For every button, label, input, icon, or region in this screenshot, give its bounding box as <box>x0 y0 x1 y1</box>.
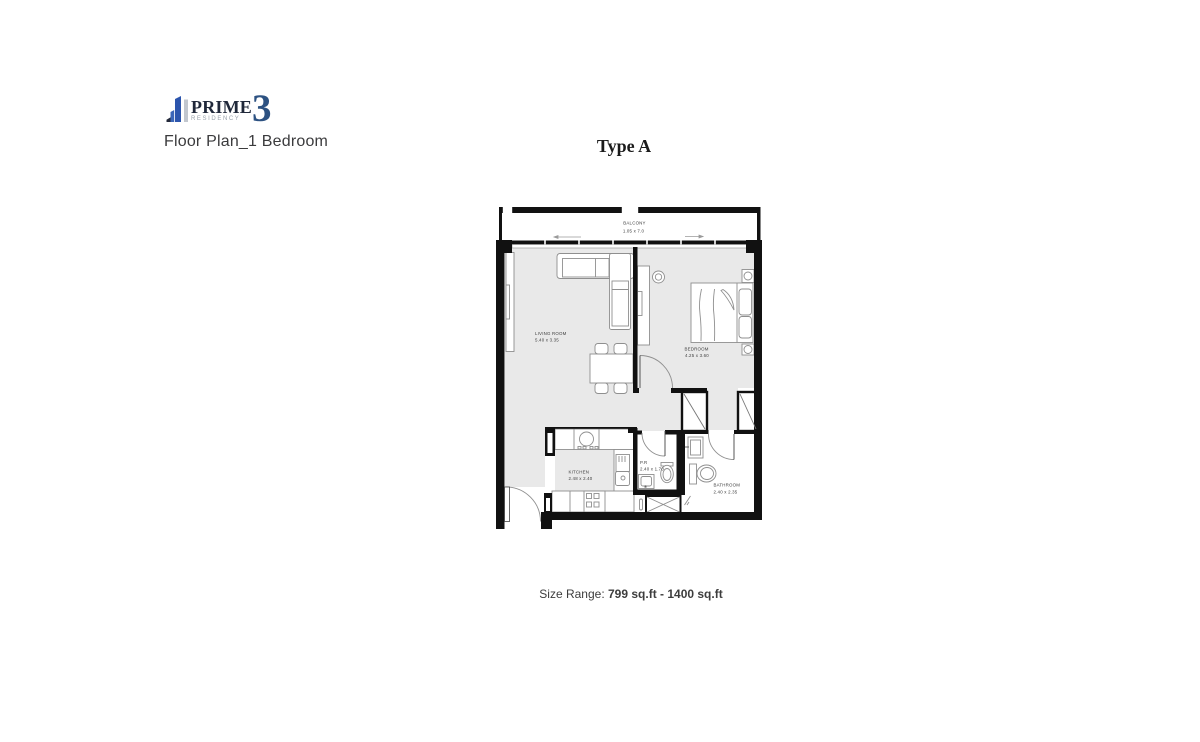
svg-text:BEDROOM: BEDROOM <box>685 347 709 352</box>
svg-text:2.40 x 1.70: 2.40 x 1.70 <box>640 467 664 472</box>
svg-text:1.05 x 7.0: 1.05 x 7.0 <box>623 229 645 234</box>
svg-text:4.25 x 3.60: 4.25 x 3.60 <box>685 353 709 358</box>
svg-text:LIVING ROOM: LIVING ROOM <box>535 331 567 336</box>
svg-text:BALCONY: BALCONY <box>623 221 645 226</box>
svg-text:2.40 x 2.35: 2.40 x 2.35 <box>714 490 738 495</box>
svg-text:P.R: P.R <box>640 460 647 465</box>
svg-text:BATHROOM: BATHROOM <box>714 483 741 488</box>
svg-text:5.40 x 3.35: 5.40 x 3.35 <box>535 338 559 343</box>
svg-text:KITCHEN: KITCHEN <box>569 470 590 475</box>
svg-text:2.48 x 2.40: 2.48 x 2.40 <box>569 476 593 481</box>
